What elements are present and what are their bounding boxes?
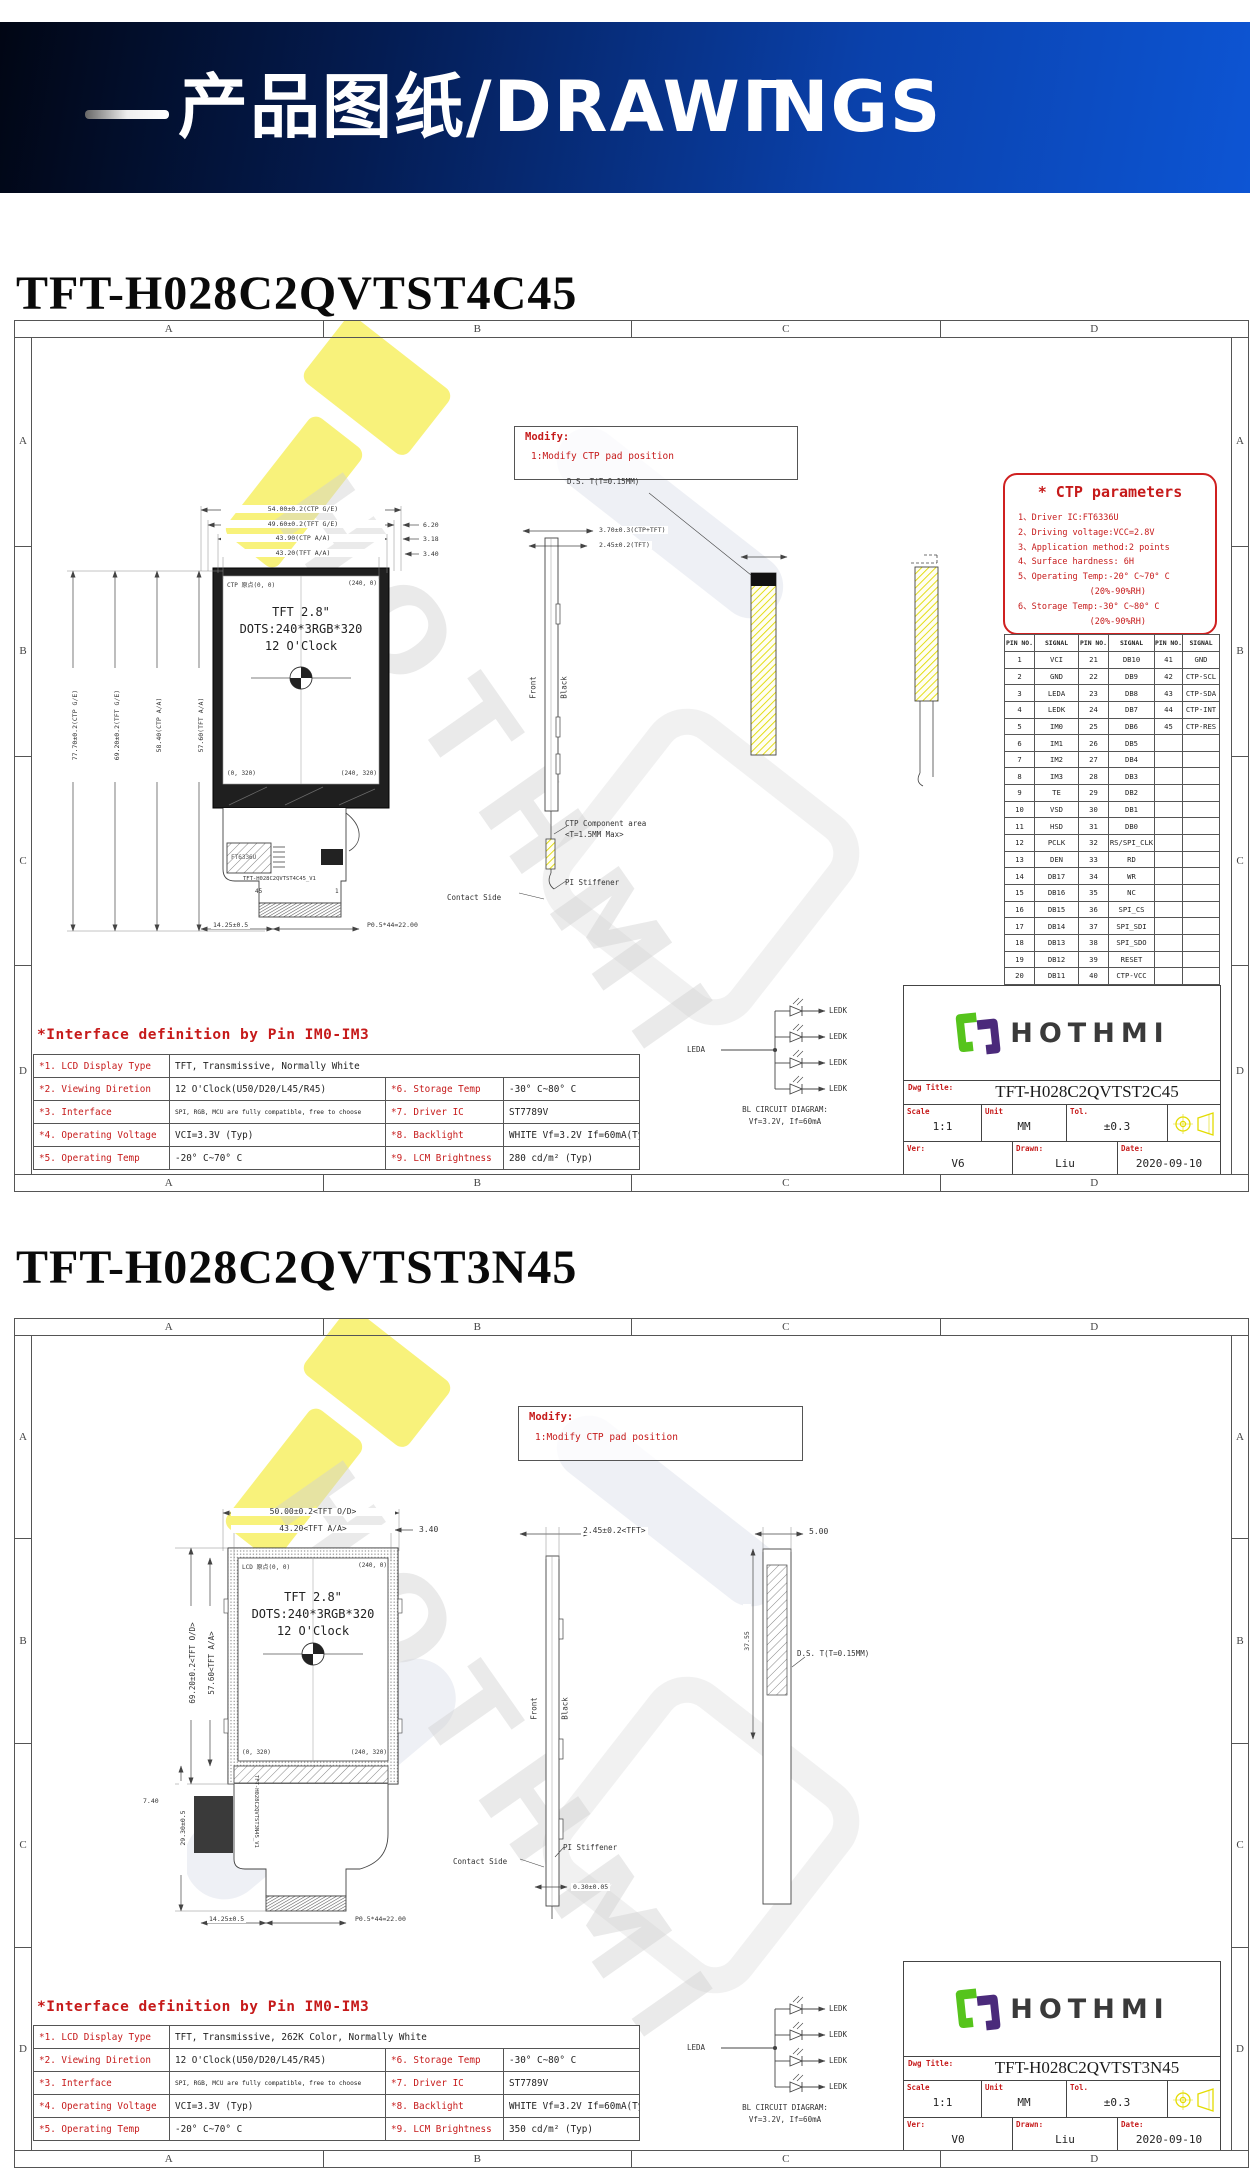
- pin-signal: CTP-RES: [1183, 719, 1220, 736]
- pin-no: 17: [1005, 918, 1035, 935]
- pin-no: 35: [1079, 885, 1109, 902]
- pin-signal: DB10: [1109, 652, 1155, 669]
- bl-circuit-caption: BL CIRCUIT DIAGRAM:: [705, 1105, 865, 1114]
- date-label: Date:: [1121, 1144, 1144, 1153]
- corner-br: (240, 320): [305, 1749, 387, 1756]
- zone-letter: C: [631, 2151, 940, 2167]
- iface-value: 12 O'Clock(U50/D20/L45/R45): [170, 2049, 386, 2072]
- pin-signal: [1183, 868, 1220, 885]
- iface-value: 280 cd/m² (Typ): [504, 1147, 640, 1170]
- date-cell: Date:2020-09-10: [1117, 2118, 1220, 2151]
- drawing-sheet-1: ABCD ABCD ABCD ABCD HOTHMI: [14, 320, 1249, 1192]
- modify-line: 1:Modify CTP pad position: [531, 451, 674, 463]
- dim-pi-thickness: 0.30±0.05: [571, 1883, 610, 1891]
- zone-letter: C: [631, 1175, 940, 1191]
- zone-band-right: ABCD: [1231, 1335, 1248, 2151]
- pin-signal: [1183, 885, 1220, 902]
- zone-letter: B: [15, 1538, 31, 1742]
- pin-signal: CTP-SCL: [1183, 669, 1220, 686]
- unit-cell: UnitMM: [981, 1105, 1066, 1142]
- third-angle-projection-icon: [1171, 1111, 1217, 1137]
- fpc-part-label: TFT-H028C2QVTST3N45_V1: [253, 1775, 259, 1865]
- fpc-tail: [194, 1784, 388, 1923]
- drawn-cell: Drawn:Liu: [1012, 2118, 1117, 2151]
- iface-label: *7. Driver IC: [386, 1101, 504, 1124]
- pin-no: 4: [1005, 702, 1035, 719]
- fpc-chip-label: FT6336U: [231, 854, 256, 861]
- pin-no: [1155, 968, 1183, 985]
- dim-rv-1: 5.00: [807, 1528, 830, 1536]
- zone-band-top: ABCD: [15, 1319, 1248, 1336]
- pin-signal: NC: [1109, 885, 1155, 902]
- pin-signal: DB4: [1109, 752, 1155, 769]
- dim-side-1: 3.70±0.3(CTP+TFT): [597, 526, 668, 534]
- hothmi-logo: HOTHMI: [904, 1962, 1220, 2056]
- bl-circuit-values: Vf=3.2V, If=60mA: [705, 2115, 865, 2124]
- ctp-parameter-line: 6、Storage Temp:-30° C~80° C: [1018, 600, 1170, 615]
- contact-side-label: Contact Side: [447, 893, 501, 902]
- pin-signal: SPI_SDO: [1109, 935, 1155, 952]
- iface-label: *2. Viewing Diretion: [34, 1078, 170, 1101]
- dim-side-2: 2.45±0.2(TFT): [597, 541, 652, 549]
- pin-no: [1155, 918, 1183, 935]
- hothmi-logo: HOTHMI: [904, 986, 1220, 1080]
- drawn-value: Liu: [1013, 1157, 1117, 1170]
- product-drawings-page: 产品图纸/DRAWINGS TFT-H028C2QVTST4C45 ABCD A…: [0, 0, 1250, 2181]
- iface-value: VCI=3.3V (Typ): [170, 2095, 386, 2118]
- pin-signal: CTP-SDA: [1183, 685, 1220, 702]
- pin-signal: [1183, 785, 1220, 802]
- pin-signal: DB15: [1035, 902, 1079, 919]
- dim-fpc-1: 14.25±0.5: [207, 1915, 246, 1923]
- tol-value: ±0.3: [1067, 2096, 1167, 2109]
- pin-no: 9: [1005, 785, 1035, 802]
- pin-no: 19: [1005, 952, 1035, 969]
- iface-value: -30° C~80° C: [504, 1078, 640, 1101]
- pin-signal: CTP-VCC: [1109, 968, 1155, 985]
- ver-label: Ver:: [907, 2120, 925, 2129]
- lcd-clock-label: 12 O'Clock: [221, 638, 381, 654]
- pin-no: [1155, 835, 1183, 852]
- modify-title: Modify:: [529, 1411, 573, 1424]
- pin-table-header-cell: PIN NO.: [1079, 635, 1109, 652]
- pin-signal: HSD: [1035, 818, 1079, 835]
- tol-value: ±0.3: [1067, 1120, 1167, 1133]
- pin-no: 6: [1005, 735, 1035, 752]
- pin-no: 11: [1005, 818, 1035, 835]
- ver-cell: Ver:V6: [904, 1142, 1012, 1175]
- ctp-parameter-line: (20%-90%RH): [1018, 585, 1170, 600]
- pin-signal: [1183, 852, 1220, 869]
- corner-tr: (240, 0): [301, 580, 377, 587]
- corner-bl: (0, 320): [242, 1749, 271, 1756]
- pin-no: 30: [1079, 802, 1109, 819]
- pin-signal: [1183, 735, 1220, 752]
- pin-no: [1155, 852, 1183, 869]
- projection-symbol-cell: [1167, 2081, 1220, 2118]
- pin-no: 33: [1079, 852, 1109, 869]
- modify-note-box: Modify: 1:Modify CTP pad position: [518, 1406, 803, 1461]
- pin-table-header: PIN NO.SIGNALPIN NO.SIGNALPIN NO.SIGNAL: [1004, 634, 1220, 652]
- scale-label: Scale: [907, 2083, 930, 2092]
- scale-unit-tol-row: Scale1:1 UnitMM Tol.±0.3: [904, 1104, 1220, 1142]
- zone-letter: A: [15, 1175, 323, 1191]
- corner-origin: CTP 原点(0, 0): [227, 580, 275, 589]
- bl-circuit-lines: [721, 998, 825, 1094]
- dwg-title-label: Dwg Title:: [908, 1083, 953, 1092]
- dim-left-3: 29.30±0.5: [179, 1781, 187, 1875]
- zone-letter: D: [940, 321, 1249, 337]
- pin-signal: [1183, 902, 1220, 919]
- pin-no: 44: [1155, 702, 1183, 719]
- ctp-parameter-line: (20%-90%RH): [1018, 615, 1170, 630]
- scale-cell: Scale1:1: [904, 2081, 981, 2118]
- dim-top-2: 49.60±0.2(TFT G/E): [221, 520, 385, 528]
- pin-signal: RS/SPI_CLK: [1109, 835, 1155, 852]
- pin-no: 31: [1079, 818, 1109, 835]
- zone-letter: D: [940, 2151, 1249, 2167]
- pin-no: 45: [1155, 719, 1183, 736]
- pi-stiffener-label: PI Stiffener: [565, 878, 619, 887]
- banner-left-dash-icon: [85, 110, 169, 119]
- zone-letter: A: [15, 337, 31, 546]
- dim-rv-2: 37.55: [743, 1604, 751, 1678]
- ctp-parameter-line: 1、Driver IC:FT6336U: [1018, 511, 1170, 526]
- pin-signal: VCI: [1035, 652, 1079, 669]
- zone-band-right: ABCD: [1231, 337, 1248, 1175]
- iface-value: ST7789V: [504, 1101, 640, 1124]
- pin-signal: DB5: [1109, 735, 1155, 752]
- drawing2-title: TFT-H028C2QVTST3N45: [16, 1240, 577, 1295]
- ctp-parameter-line: 3、Application method:2 points: [1018, 541, 1170, 556]
- zone-band-left: ABCD: [15, 337, 32, 1175]
- dim-fpc-2: P0.5*44=22.00: [365, 921, 420, 929]
- drawn-cell: Drawn:Liu: [1012, 1142, 1117, 1175]
- dim-top-2: 43.20<TFT A/A>: [231, 1525, 395, 1533]
- iface-label: *9. LCM Brightness: [386, 2118, 504, 2141]
- ctp-component-area-max: <T=1.5MM Max>: [565, 830, 624, 839]
- zone-letter: B: [1232, 1538, 1248, 1742]
- zone-band-bottom: ABCD: [15, 2150, 1248, 2167]
- ds-thickness-label: D.S. T(T=0.15MM): [567, 477, 639, 486]
- pin-signal: DB13: [1035, 935, 1079, 952]
- pin-no: 28: [1079, 768, 1109, 785]
- lcd-size-label: TFT 2.8": [221, 604, 381, 620]
- fpc-pin-1: 1: [335, 888, 339, 895]
- iface-value: 12 O'Clock(U50/D20/L45/R45): [170, 1078, 386, 1101]
- dim-left-3: 58.40(CTP A/A): [155, 668, 163, 782]
- pin-signal: DB9: [1109, 669, 1155, 686]
- pin-no: 8: [1005, 768, 1035, 785]
- tol-cell: Tol.±0.3: [1066, 1105, 1167, 1142]
- ctp-parameter-line: 4、Surface hardness: 6H: [1018, 555, 1170, 570]
- date-value: 2020-09-10: [1118, 1157, 1220, 1170]
- section-banner: 产品图纸/DRAWINGS: [0, 22, 1250, 193]
- pin-no: 22: [1079, 669, 1109, 686]
- pin-signal: DEN: [1035, 852, 1079, 869]
- ledk-label: LEDK: [829, 1032, 847, 1041]
- zone-letter: B: [15, 546, 31, 756]
- pin-no: [1155, 785, 1183, 802]
- banner-title: 产品图纸/DRAWINGS: [178, 62, 942, 152]
- dim-top-3: 43.90(CTP A/A): [221, 534, 385, 542]
- ledk-label: LEDK: [829, 2056, 847, 2065]
- drawn-value: Liu: [1013, 2133, 1117, 2146]
- pin-no: 10: [1005, 802, 1035, 819]
- zone-letter: B: [323, 2151, 632, 2167]
- side-front-label: Front: [530, 1681, 539, 1737]
- dim-fpc-2: P0.5*44=22.00: [353, 1915, 408, 1923]
- zone-letter: A: [1232, 337, 1248, 546]
- ledk-label: LEDK: [829, 1084, 847, 1093]
- right-detail-view: [753, 1527, 805, 1904]
- dwg-title-value: TFT-H028C2QVTST2C45: [960, 1082, 1214, 1102]
- pin-no: 25: [1079, 719, 1109, 736]
- iface-label: *8. Backlight: [386, 2095, 504, 2118]
- ctp-parameter-line: 2、Driving voltage:VCC=2.8V: [1018, 526, 1170, 541]
- pin-no: 29: [1079, 785, 1109, 802]
- pin-signal: DB14: [1035, 918, 1079, 935]
- zone-letter: A: [15, 1335, 31, 1538]
- corner-bl: (0, 320): [227, 770, 256, 777]
- zone-letter: C: [15, 756, 31, 966]
- pin-no: 43: [1155, 685, 1183, 702]
- dim-left-1: 69.20±0.2<TFT O/D>: [189, 1606, 197, 1720]
- pin-signal: PCLK: [1035, 835, 1079, 852]
- dwg-title-value: TFT-H028C2QVTST3N45: [960, 2058, 1214, 2078]
- iface-label: *3. Interface: [34, 1101, 170, 1124]
- scale-value: 1:1: [904, 2096, 981, 2109]
- ledk-label: LEDK: [829, 1006, 847, 1015]
- pin-no: [1155, 802, 1183, 819]
- pin-table-header-cell: SIGNAL: [1035, 635, 1079, 652]
- lcd-dots-label: DOTS:240*3RGB*320: [221, 621, 381, 637]
- hothmi-logo-text: HOTHMI: [1010, 1994, 1169, 2025]
- iface-value: WHITE Vf=3.2V If=60mA(Typ): [504, 1124, 640, 1147]
- pin-no: [1155, 935, 1183, 952]
- pin-no: 34: [1079, 868, 1109, 885]
- date-value: 2020-09-10: [1118, 2133, 1220, 2146]
- ctp-parameters-title: * CTP parameters: [1005, 483, 1215, 501]
- pin-signal: DB11: [1035, 968, 1079, 985]
- ledk-label: LEDK: [829, 1058, 847, 1067]
- iface-value: -30° C~80° C: [504, 2049, 640, 2072]
- pin-signal: DB16: [1035, 885, 1079, 902]
- dim-right-2: 3.18: [421, 535, 441, 543]
- pin-signal: [1183, 918, 1220, 935]
- dim-left-1: 77.70±0.2(CTP G/E): [71, 668, 79, 782]
- zone-letter: D: [15, 1947, 31, 2151]
- drawn-label: Drawn:: [1016, 2120, 1043, 2129]
- date-label: Date:: [1121, 2120, 1144, 2129]
- pin-signal: [1183, 835, 1220, 852]
- iface-value: SPI, RGB, MCU are fully compatible, free…: [170, 2072, 386, 2095]
- pin-no: 42: [1155, 669, 1183, 686]
- modify-note-box: Modify: 1:Modify CTP pad position: [514, 426, 798, 480]
- side-black-label: Black: [561, 1681, 570, 1737]
- pin-signal: IM3: [1035, 768, 1079, 785]
- pin-signal: [1183, 752, 1220, 769]
- scale-value: 1:1: [904, 1120, 981, 1133]
- pin-table: 1VCI21DB1041GND2GND22DB942CTP-SCL3LEDA23…: [1004, 651, 1220, 985]
- ctp-component-area-label: CTP Component area: [565, 819, 646, 828]
- zone-letter: B: [323, 1319, 632, 1335]
- pin-signal: DB7: [1109, 702, 1155, 719]
- dim-fpc-1: 14.25±0.5: [211, 921, 250, 929]
- dim-left-2: 69.20±0.2(TFT G/E): [113, 668, 121, 782]
- ver-cell: Ver:V0: [904, 2118, 1012, 2151]
- iface-label: *8. Backlight: [386, 1124, 504, 1147]
- pin-signal: CTP-INT: [1183, 702, 1220, 719]
- pin-signal: VSD: [1035, 802, 1079, 819]
- pin-no: 13: [1005, 852, 1035, 869]
- hothmi-logo-icon: [954, 1010, 1002, 1056]
- zone-letter: A: [15, 321, 323, 337]
- ledk-label: LEDK: [829, 2004, 847, 2013]
- pin-signal: LEDA: [1035, 685, 1079, 702]
- pin-no: [1155, 752, 1183, 769]
- ver-label: Ver:: [907, 1144, 925, 1153]
- ctp-parameters-list: 1、Driver IC:FT6336U2、Driving voltage:VCC…: [1018, 511, 1170, 629]
- pin-no: 41: [1155, 652, 1183, 669]
- leda-label: LEDA: [687, 2043, 705, 2052]
- tol-label: Tol.: [1070, 1107, 1088, 1116]
- dim-top-1: 54.00±0.2(CTP G/E): [221, 505, 385, 513]
- pin-no: 15: [1005, 885, 1035, 902]
- zone-letter: B: [323, 321, 632, 337]
- pin-table-header-cell: PIN NO.: [1005, 635, 1035, 652]
- zone-letter: C: [631, 321, 940, 337]
- dim-right-1: 6.20: [421, 521, 441, 529]
- detail-view-a: [649, 493, 787, 755]
- pin-no: 37: [1079, 918, 1109, 935]
- pin-no: 2: [1005, 669, 1035, 686]
- pin-signal: DB12: [1035, 952, 1079, 969]
- unit-value: MM: [982, 1120, 1066, 1133]
- hothmi-logo-text: HOTHMI: [1010, 1018, 1169, 1049]
- pin-no: 27: [1079, 752, 1109, 769]
- dim-top-4: 43.20(TFT A/A): [221, 549, 385, 557]
- side-black-label: Black: [560, 660, 569, 716]
- interface-row-1: *1. LCD Display Type TFT, Transmissive, …: [33, 2025, 640, 2049]
- pin-signal: WR: [1109, 868, 1155, 885]
- modify-title: Modify:: [525, 431, 569, 444]
- fpc-pin-45: 45: [255, 888, 262, 895]
- pin-no: 20: [1005, 968, 1035, 985]
- zone-band-left: ABCD: [15, 1335, 32, 2151]
- ver-value: V6: [904, 1157, 1012, 1170]
- zone-band-bottom: ABCD: [15, 1174, 1248, 1191]
- interface-definition-title: *Interface definition by Pin IM0-IM3: [37, 1027, 369, 1043]
- pin-table-header-cell: SIGNAL: [1183, 635, 1220, 652]
- iface-label: *1. LCD Display Type: [34, 2026, 170, 2049]
- title-block: HOTHMI Dwg Title: TFT-H028C2QVTST3N45 Sc…: [903, 1961, 1221, 2151]
- pin-no: 23: [1079, 685, 1109, 702]
- iface-value: TFT, Transmissive, Normally White: [170, 1055, 640, 1078]
- pin-signal: RESET: [1109, 952, 1155, 969]
- detail-view-b: [911, 555, 938, 786]
- iface-label: *3. Interface: [34, 2072, 170, 2095]
- ctp-parameter-line: 5、Operating Temp:-20° C~70° C: [1018, 570, 1170, 585]
- iface-value: ST7789V: [504, 2072, 640, 2095]
- pin-signal: [1183, 802, 1220, 819]
- pin-signal: DB8: [1109, 685, 1155, 702]
- ver-drawn-date-row: Ver:V6 Drawn:Liu Date:2020-09-10: [904, 1141, 1220, 1175]
- lcd-clock-label: 12 O'Clock: [233, 1623, 393, 1639]
- lcd-size-label: TFT 2.8": [233, 1589, 393, 1605]
- pin-signal: IM0: [1035, 719, 1079, 736]
- zone-letter: A: [15, 2151, 323, 2167]
- pin-no: [1155, 818, 1183, 835]
- bl-circuit-caption: BL CIRCUIT DIAGRAM:: [705, 2103, 865, 2112]
- zone-letter: D: [940, 1319, 1249, 1335]
- pin-signal: [1183, 968, 1220, 985]
- dim-left-2: 57.60<TFT A/A>: [208, 1606, 216, 1720]
- zone-letter: A: [1232, 1335, 1248, 1538]
- iface-label: *9. LCM Brightness: [386, 1147, 504, 1170]
- pin-signal: DB1: [1109, 802, 1155, 819]
- dim-right-3: 3.40: [421, 550, 441, 558]
- zone-letter: D: [940, 1175, 1249, 1191]
- pin-signal: DB2: [1109, 785, 1155, 802]
- dim-top-1: 50.00±0.2<TFT O/D>: [231, 1508, 395, 1516]
- iface-value: 350 cd/m² (Typ): [504, 2118, 640, 2141]
- pin-signal: DB6: [1109, 719, 1155, 736]
- pin-no: 3: [1005, 685, 1035, 702]
- drawn-label: Drawn:: [1016, 1144, 1043, 1153]
- pin-no: 14: [1005, 868, 1035, 885]
- scale-label: Scale: [907, 1107, 930, 1116]
- iface-value: SPI, RGB, MCU are fully compatible, free…: [170, 1101, 386, 1124]
- pin-no: [1155, 952, 1183, 969]
- projection-symbol-cell: [1167, 1105, 1220, 1142]
- zone-letter: C: [15, 1743, 31, 1947]
- bl-circuit-values: Vf=3.2V, If=60mA: [705, 1117, 865, 1126]
- pin-signal: [1183, 768, 1220, 785]
- pin-no: 24: [1079, 702, 1109, 719]
- pin-no: 18: [1005, 935, 1035, 952]
- zone-band-top: ABCD: [15, 321, 1248, 338]
- zone-letter: A: [15, 1319, 323, 1335]
- pin-no: 16: [1005, 902, 1035, 919]
- zone-letter: C: [1232, 756, 1248, 966]
- third-angle-projection-icon: [1171, 2087, 1217, 2113]
- pin-no: 26: [1079, 735, 1109, 752]
- lcd-dots-label: DOTS:240*3RGB*320: [233, 1606, 393, 1622]
- iface-label: *5. Operating Temp: [34, 1147, 170, 1170]
- scale-cell: Scale1:1: [904, 1105, 981, 1142]
- pin-no: 7: [1005, 752, 1035, 769]
- pin-signal: RD: [1109, 852, 1155, 869]
- zone-letter: D: [1232, 1947, 1248, 2151]
- pin-table-header-cell: PIN NO.: [1155, 635, 1183, 652]
- pin-signal: DB3: [1109, 768, 1155, 785]
- ver-drawn-date-row: Ver:V0 Drawn:Liu Date:2020-09-10: [904, 2117, 1220, 2151]
- banner-right-dash-icon: [752, 80, 792, 88]
- ver-value: V0: [904, 2133, 1012, 2146]
- iface-label: *5. Operating Temp: [34, 2118, 170, 2141]
- ctp-parameters-box: * CTP parameters 1、Driver IC:FT6336U2、Dr…: [1003, 473, 1217, 635]
- unit-label: Unit: [985, 2083, 1003, 2092]
- dim-left-4: 57.60(TFT A/A): [197, 668, 205, 782]
- corner-br: (240, 320): [301, 770, 377, 777]
- dwg-title-label: Dwg Title:: [908, 2059, 953, 2068]
- modify-line: 1:Modify CTP pad position: [535, 1432, 678, 1444]
- ledk-label: LEDK: [829, 2030, 847, 2039]
- pin-no: [1155, 768, 1183, 785]
- iface-label: *2. Viewing Diretion: [34, 2049, 170, 2072]
- bl-circuit-lines: [721, 1996, 825, 2092]
